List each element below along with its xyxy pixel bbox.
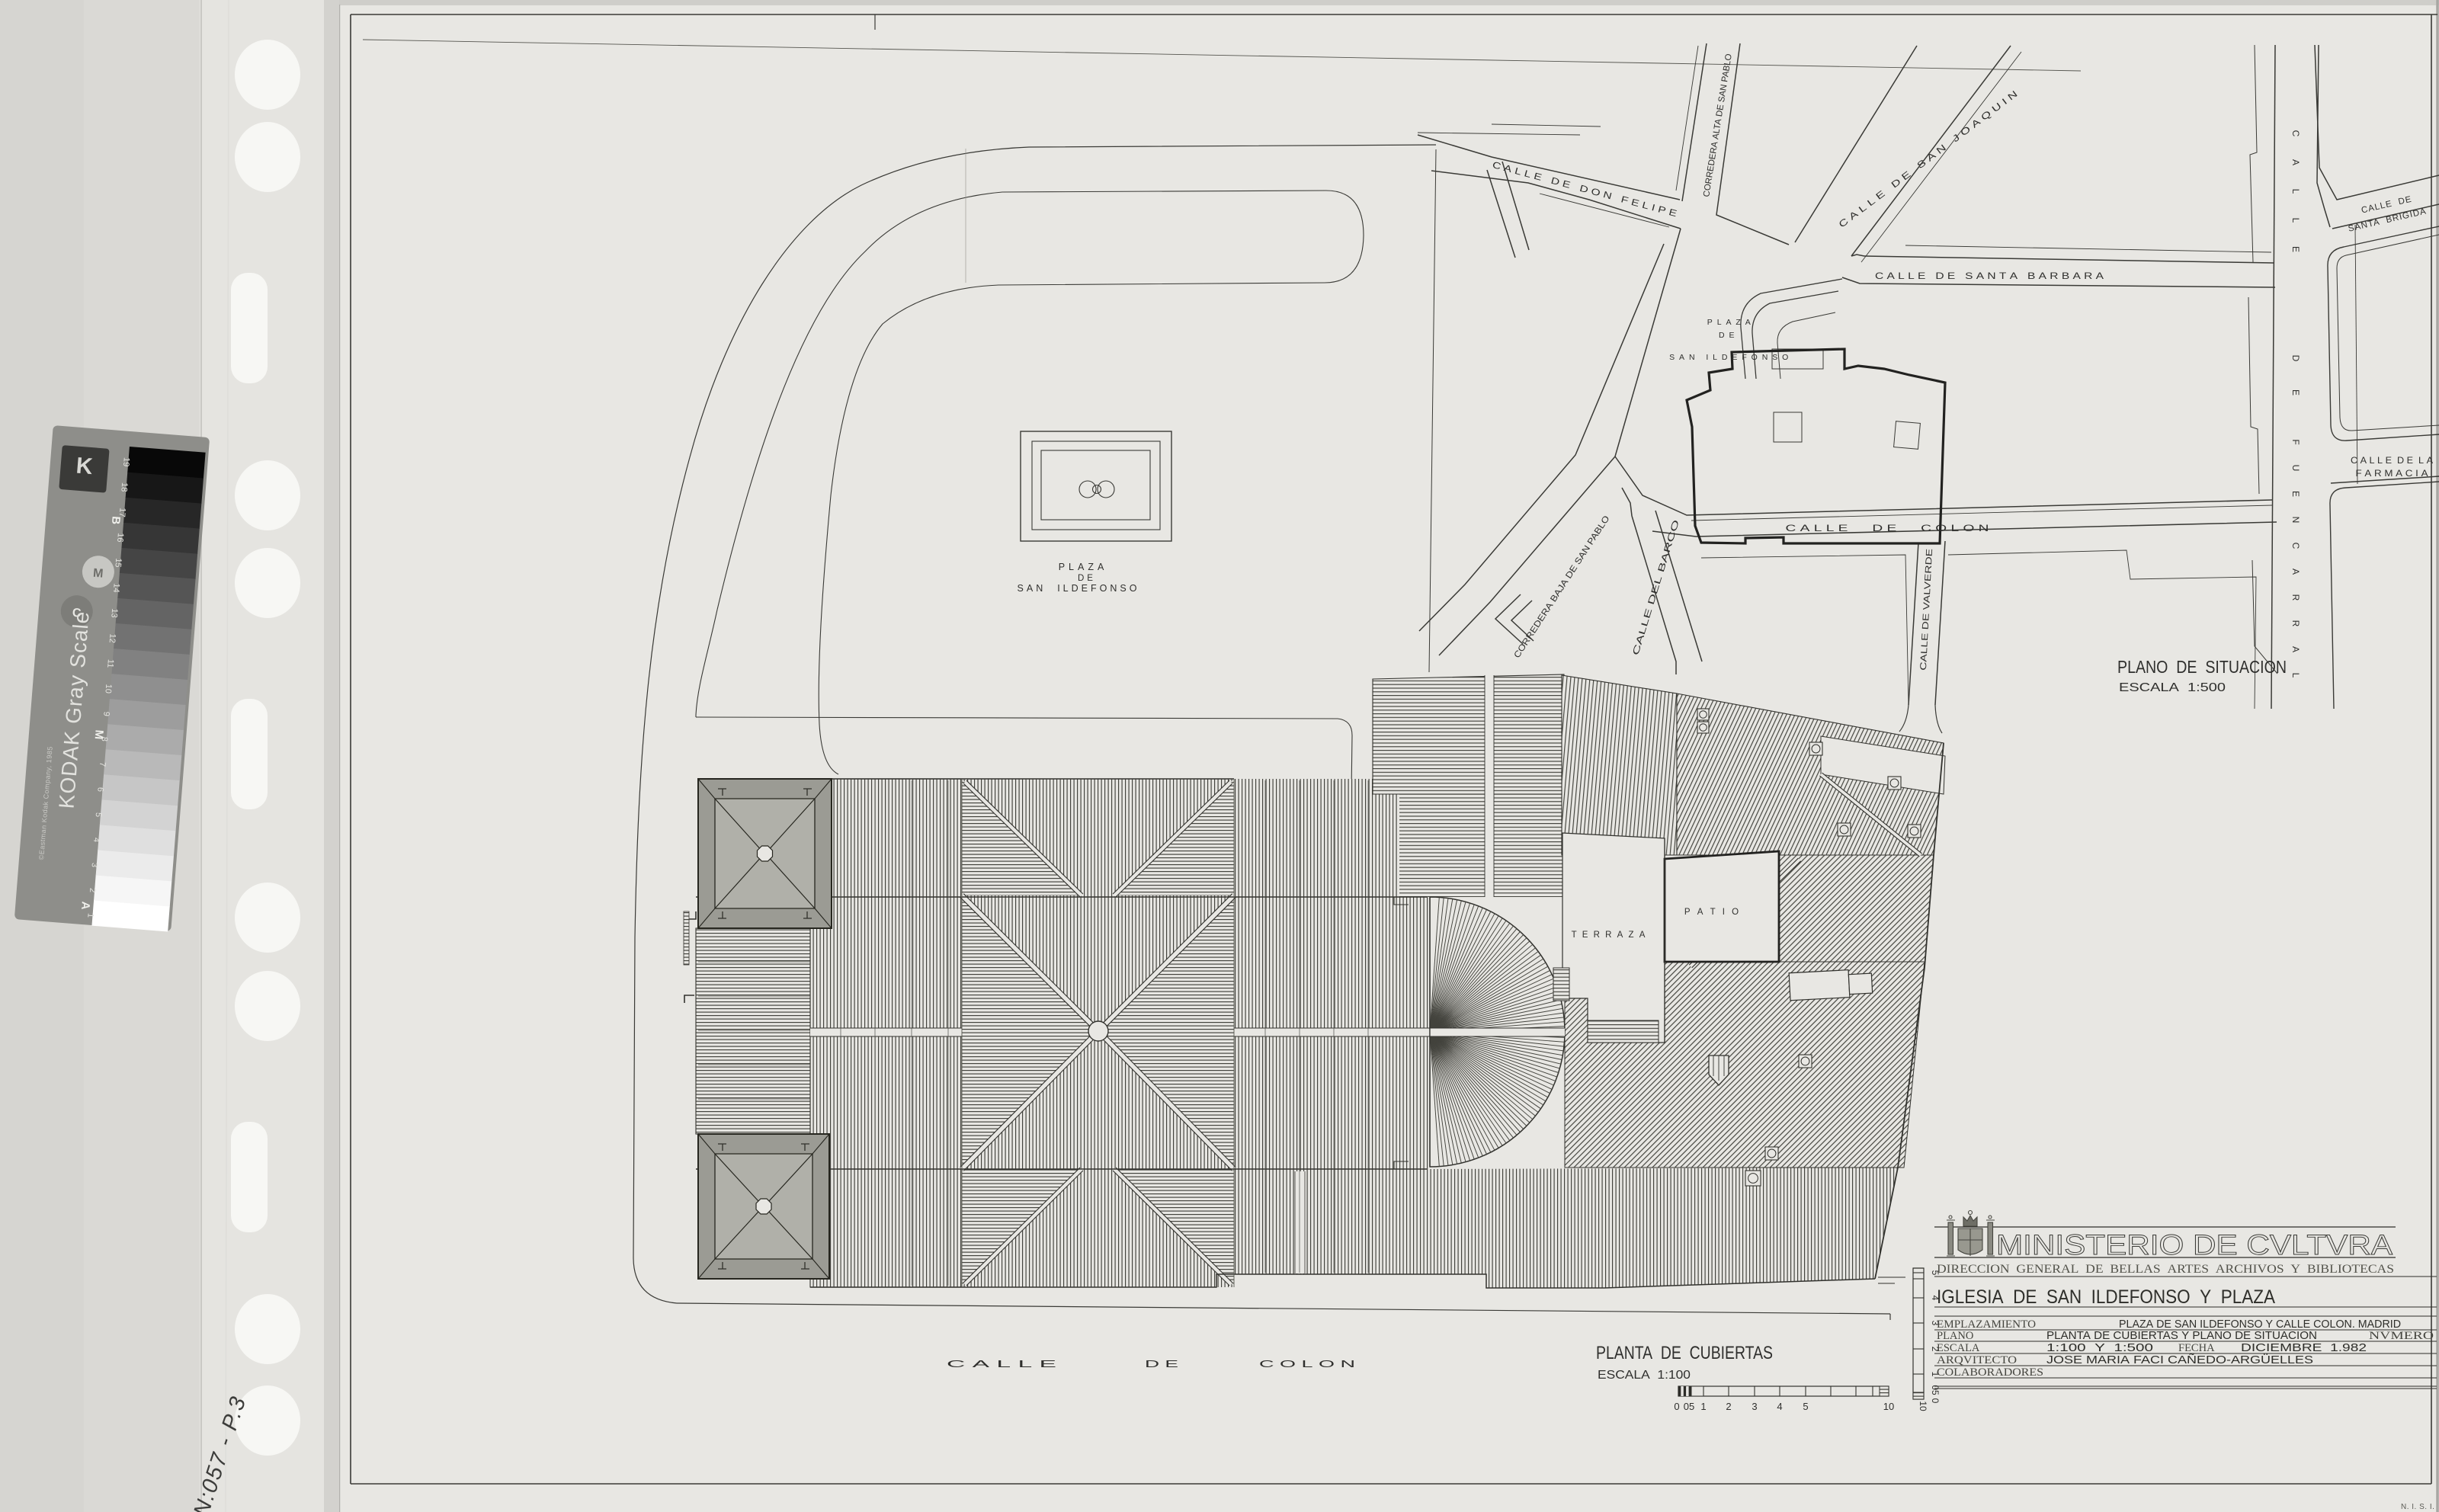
svg-text:FECHA: FECHA (2178, 1342, 2215, 1354)
svg-text:E: E (2290, 246, 2301, 252)
svg-text:R: R (2290, 594, 2301, 601)
svg-text:E: E (2290, 389, 2301, 396)
svg-text:PLAZA: PLAZA (1059, 562, 1108, 572)
svg-text:12: 12 (107, 633, 117, 643)
svg-text:DICIEMBRE 1.982: DICIEMBRE 1.982 (2241, 1341, 2367, 1354)
svg-text:NVMERO: NVMERO (2369, 1330, 2434, 1342)
svg-text:IGLESIA DE SAN ILDEFONSO Y: IGLESIA DE SAN ILDEFONSO Y PLAZA (1937, 1286, 2275, 1308)
svg-text:L: L (2290, 673, 2301, 678)
svg-text:C: C (2290, 130, 2301, 137)
svg-text:15: 15 (113, 558, 123, 568)
svg-text:18: 18 (119, 482, 129, 492)
svg-text:S A N I L D E F O N S O: S A N I L D E F O N S O (1669, 353, 1790, 362)
svg-text:C A L L E D E L A: C A L L E D E L A (2351, 456, 2433, 466)
svg-text:D E: D E (1145, 1359, 1178, 1369)
svg-text:7: 7 (98, 761, 107, 767)
svg-text:L: L (2290, 218, 2301, 223)
svg-text:10: 10 (1918, 1401, 1928, 1411)
svg-text:N. I. S. I.: N. I. S. I. (2401, 1503, 2434, 1511)
svg-text:3: 3 (1752, 1401, 1757, 1412)
svg-text:E: E (2290, 491, 2301, 497)
svg-text:0: 0 (1930, 1398, 1941, 1404)
svg-text:M: M (92, 729, 106, 740)
svg-text:C A L L E D E S A N T A: C A L L E D E S A N T A B A R B A R A (1875, 271, 2104, 281)
svg-text:C: C (2290, 543, 2301, 549)
svg-text:10: 10 (1883, 1401, 1894, 1412)
svg-text:JOSE MARIA FACI CAÑEDO-ARGÜELL: JOSE MARIA FACI CAÑEDO-ARGÜELLES (2046, 1353, 2313, 1366)
svg-text:C A L L E D E C O L: C A L L E D E C O L O N (1786, 523, 1989, 533)
svg-text:5: 5 (1803, 1401, 1808, 1412)
svg-text:D E: D E (1719, 331, 1736, 340)
svg-text:B: B (109, 516, 123, 525)
svg-text:19: 19 (121, 457, 131, 467)
svg-text:EMPLAZAMIENTO: EMPLAZAMIENTO (1937, 1318, 2036, 1331)
svg-text:2: 2 (88, 888, 97, 893)
svg-text:SAN ILDEFONSO: SAN ILDEFONSO (1018, 583, 1140, 594)
svg-text:9: 9 (101, 711, 111, 716)
svg-text:P L A Z A: P L A Z A (1707, 318, 1752, 327)
svg-text:D: D (2290, 355, 2301, 362)
svg-text:U: U (2290, 465, 2301, 472)
svg-text:COLABORADORES: COLABORADORES (1937, 1366, 2043, 1379)
svg-text:5: 5 (94, 812, 103, 817)
svg-text:A: A (2290, 569, 2301, 575)
svg-text:M: M (92, 567, 104, 581)
svg-text:L: L (2290, 189, 2301, 194)
svg-text:MINISTERIO DE CVLTVRA: MINISTERIO DE CVLTVRA (1996, 1229, 2393, 1261)
svg-text:6: 6 (95, 786, 104, 792)
svg-text:A: A (2290, 159, 2301, 165)
svg-text:A: A (2290, 646, 2301, 652)
svg-text:T E R R A Z A: T E R R A Z A (1572, 931, 1647, 940)
svg-text:16: 16 (115, 533, 125, 543)
svg-text:13: 13 (109, 608, 119, 618)
svg-text:K: K (75, 453, 95, 480)
svg-text:3: 3 (89, 863, 98, 868)
svg-text:1: 1 (85, 913, 95, 918)
svg-text:14: 14 (111, 583, 121, 593)
svg-text:4: 4 (91, 838, 101, 843)
svg-text:PLANTA DE CUBIERTAS Y PLANO DE: PLANTA DE CUBIERTAS Y PLANO DE SITUACION (2046, 1329, 2317, 1342)
svg-text:1:100 Y 1:500: 1:100 Y 1:500 (2046, 1341, 2153, 1354)
svg-text:F A R M A C I A: F A R M A C I A (2356, 469, 2428, 479)
svg-text:DE: DE (1078, 574, 1096, 583)
svg-text:C A L L E: C A L L E (947, 1359, 1056, 1369)
svg-text:ARQVITECTO: ARQVITECTO (1937, 1354, 2017, 1366)
svg-text:4: 4 (1777, 1401, 1782, 1412)
svg-text:ESCALA: ESCALA (1937, 1342, 1980, 1354)
svg-text:2: 2 (1726, 1401, 1731, 1412)
svg-text:PLANO DE SITUACION: PLANO DE SITUACION (2117, 657, 2287, 677)
svg-text:P A T I O: P A T I O (1684, 908, 1741, 917)
svg-text:0: 0 (1674, 1401, 1679, 1412)
svg-text:F: F (2290, 439, 2301, 444)
svg-text:1: 1 (1700, 1401, 1706, 1412)
svg-text:A: A (79, 901, 92, 910)
svg-text:10: 10 (103, 684, 113, 694)
svg-text:N: N (2290, 517, 2301, 524)
svg-text:05: 05 (1684, 1401, 1694, 1412)
svg-text:ESCALA 1:100: ESCALA 1:100 (1598, 1369, 1691, 1382)
svg-text:DIRECCION GENERAL DE BELLAS: DIRECCION GENERAL DE BELLAS ARTES ARCHIV… (1937, 1263, 2394, 1276)
svg-text:11: 11 (105, 658, 115, 668)
svg-text:ESCALA 1:500: ESCALA 1:500 (2119, 681, 2226, 694)
svg-text:PLANO: PLANO (1937, 1330, 1973, 1342)
svg-text:PLANTA DE CUBIERTAS: PLANTA DE CUBIERTAS (1596, 1343, 1773, 1363)
svg-text:R: R (2290, 620, 2301, 627)
svg-text:C O L O N: C O L O N (1259, 1359, 1355, 1369)
